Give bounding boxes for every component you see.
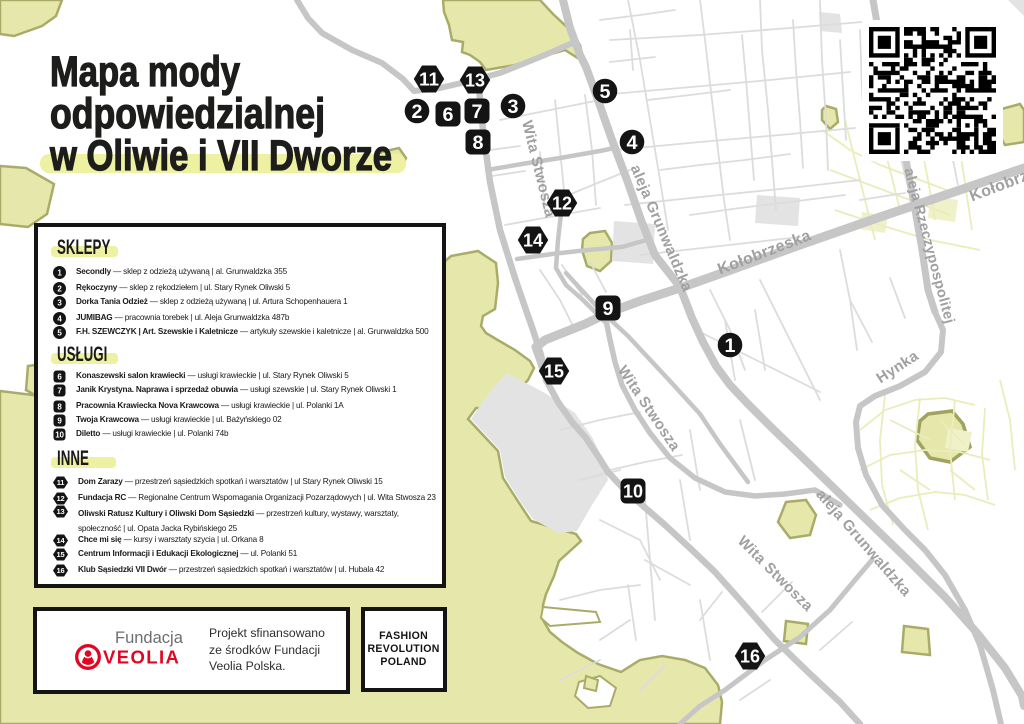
svg-text:Mapa mody: Mapa mody: [50, 48, 240, 96]
svg-text:16: 16: [57, 566, 65, 575]
svg-text:11: 11: [419, 70, 439, 90]
svg-text:13: 13: [465, 71, 485, 91]
svg-text:7: 7: [472, 101, 483, 123]
svg-text:10: 10: [55, 430, 64, 439]
svg-text:1: 1: [725, 335, 736, 357]
svg-text:11: 11: [57, 478, 65, 487]
svg-text:VEOLIA: VEOLIA: [103, 647, 180, 668]
svg-text:5: 5: [57, 328, 62, 337]
svg-text:8: 8: [473, 132, 484, 154]
svg-text:4: 4: [627, 132, 638, 154]
svg-text:14: 14: [57, 536, 66, 545]
svg-text:13: 13: [57, 507, 65, 516]
svg-text:6: 6: [57, 372, 62, 381]
svg-text:14: 14: [523, 231, 543, 251]
svg-text:15: 15: [57, 550, 65, 559]
svg-text:Fundacja: Fundacja: [115, 629, 184, 647]
svg-text:10: 10: [623, 482, 643, 502]
svg-text:12: 12: [552, 194, 572, 214]
svg-text:3: 3: [508, 96, 519, 118]
svg-text:2: 2: [57, 284, 62, 293]
svg-text:1: 1: [57, 268, 62, 277]
svg-text:w Oliwie i VII Dworze: w Oliwie i VII Dworze: [49, 132, 392, 180]
svg-text:2: 2: [412, 101, 423, 123]
svg-text:4: 4: [57, 314, 62, 323]
svg-text:3: 3: [57, 298, 62, 307]
svg-text:8: 8: [57, 402, 62, 411]
svg-text:odpowiedzialnej: odpowiedzialnej: [50, 90, 325, 138]
svg-text:16: 16: [740, 647, 760, 667]
svg-text:6: 6: [443, 104, 454, 126]
svg-text:9: 9: [57, 416, 62, 425]
svg-text:7: 7: [57, 386, 62, 395]
svg-text:15: 15: [544, 362, 564, 382]
svg-text:12: 12: [57, 494, 65, 503]
svg-text:5: 5: [600, 81, 611, 103]
svg-text:9: 9: [603, 298, 614, 320]
